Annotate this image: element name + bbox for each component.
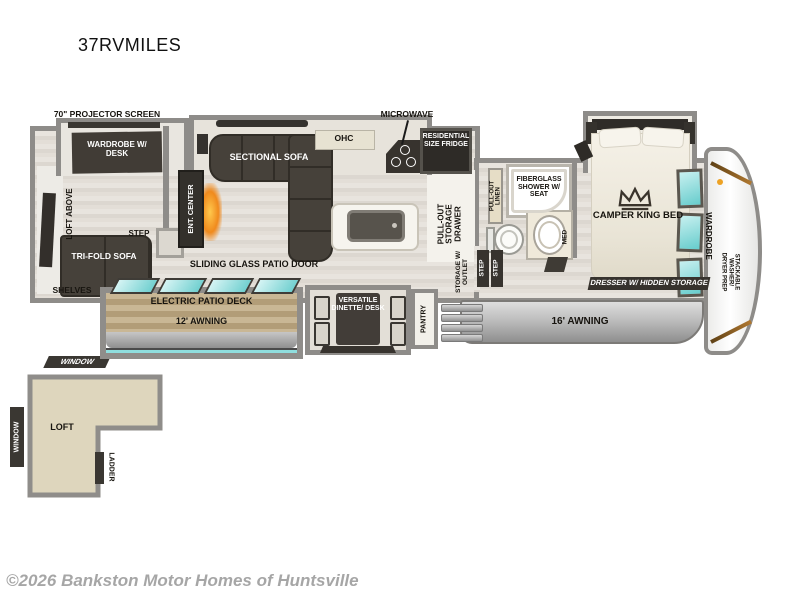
crown-icon	[616, 186, 654, 212]
storage-outlet-label: STORAGE W/ OUTLET	[456, 248, 470, 296]
dinette-seat	[314, 296, 330, 320]
wardrobe-label: WARDROBE	[704, 203, 712, 269]
faucet-icon	[392, 223, 397, 228]
sofa-slide-window	[216, 120, 308, 127]
rear-slide-window	[68, 122, 160, 128]
dinette-slideout	[305, 285, 411, 355]
entry-step-lower-label: STEP	[494, 253, 501, 283]
linen-label: PULL-OUT LINEN	[490, 178, 503, 214]
pillow-left	[598, 127, 641, 149]
patio-door-pane	[157, 278, 208, 294]
deck-rail	[106, 348, 297, 353]
shower-label: FIBERGLASS SHOWER W/ SEAT	[510, 176, 568, 199]
loft-label: LOFT	[40, 423, 84, 433]
shelves-label: SHELVES	[42, 286, 102, 295]
pillow-right	[641, 127, 684, 149]
awning12-label: 12' AWNING	[106, 317, 297, 327]
entry-stairs	[441, 304, 483, 344]
page-title: 37RVMILES	[78, 36, 181, 56]
stair-tread	[441, 304, 483, 312]
king-bed-label: CAMPER KING BED	[582, 211, 694, 221]
stove-burner-icon	[400, 145, 410, 155]
stair-tread	[441, 334, 483, 342]
med-cabinet-label: MED	[563, 224, 570, 250]
bath-mat	[544, 257, 568, 272]
ohc-label: OHC	[316, 134, 372, 143]
ladder-icon	[95, 452, 104, 484]
dinette-mat	[320, 346, 396, 353]
stair-tread	[441, 314, 483, 322]
dinette-seat	[390, 322, 406, 346]
patio-deck-frame: ELECTRIC PATIO DECK 12' AWNING	[100, 287, 303, 359]
fridge-label: RESIDENTIAL SIZE FRIDGE	[421, 133, 471, 148]
ladder-label: LADDER	[107, 444, 114, 490]
ent-center-label: ENT. CENTER	[187, 176, 195, 242]
stove-burner-icon	[391, 157, 401, 167]
tri-fold-sofa-label: TRI-FOLD SOFA	[66, 252, 142, 261]
sofa-slide-side-window	[197, 134, 208, 154]
dinette-seat	[390, 296, 406, 320]
entry-step-upper-label: STEP	[480, 253, 487, 283]
microwave-label: MICROWAVE	[352, 110, 462, 119]
projector-screen-label: 70" PROJECTOR SCREEN	[42, 110, 172, 119]
dresser-label: DRESSER W/ HIDDEN STORAGE	[588, 277, 711, 290]
patio-door-pane	[204, 278, 255, 294]
wardrobe-mirror	[676, 169, 703, 209]
sliding-door-label: SLIDING GLASS PATIO DOOR	[144, 260, 364, 270]
washer-prep-label: STACKABLE WASHER/ DRYER PREP	[721, 248, 740, 296]
copyright-text: ©2026 Bankston Motor Homes of Huntsville	[6, 572, 426, 591]
awning16-label: 16' AWNING	[520, 316, 640, 327]
sectional-sofa-label: SECTIONAL SOFA	[214, 153, 324, 163]
dinette-label: VERSATILE DINETTE/ DESK	[331, 297, 385, 312]
bath-sink-bowl	[538, 221, 561, 249]
patio-door-pane	[251, 278, 302, 294]
pullout-drawer-label: PULL-OUT STORAGE DRAWER	[437, 196, 462, 252]
awning12-roll	[106, 332, 297, 348]
rear-step-label: STEP	[124, 230, 154, 239]
stair-tread	[441, 324, 483, 332]
stove-burner-icon	[406, 157, 416, 167]
loft-above-label: LOFT ABOVE	[66, 182, 74, 246]
dinette-seat	[314, 322, 330, 346]
electric-deck-label: ELECTRIC PATIO DECK	[106, 297, 297, 307]
wardrobe-desk-label: WARDROBE W/ DESK	[77, 141, 157, 159]
loft-window-side-label: WINDOW	[13, 413, 20, 461]
cap-light-icon	[717, 179, 723, 185]
patio-door-pane	[110, 278, 161, 294]
toilet-seat	[500, 230, 518, 249]
pantry-label: PANTRY	[420, 298, 427, 340]
